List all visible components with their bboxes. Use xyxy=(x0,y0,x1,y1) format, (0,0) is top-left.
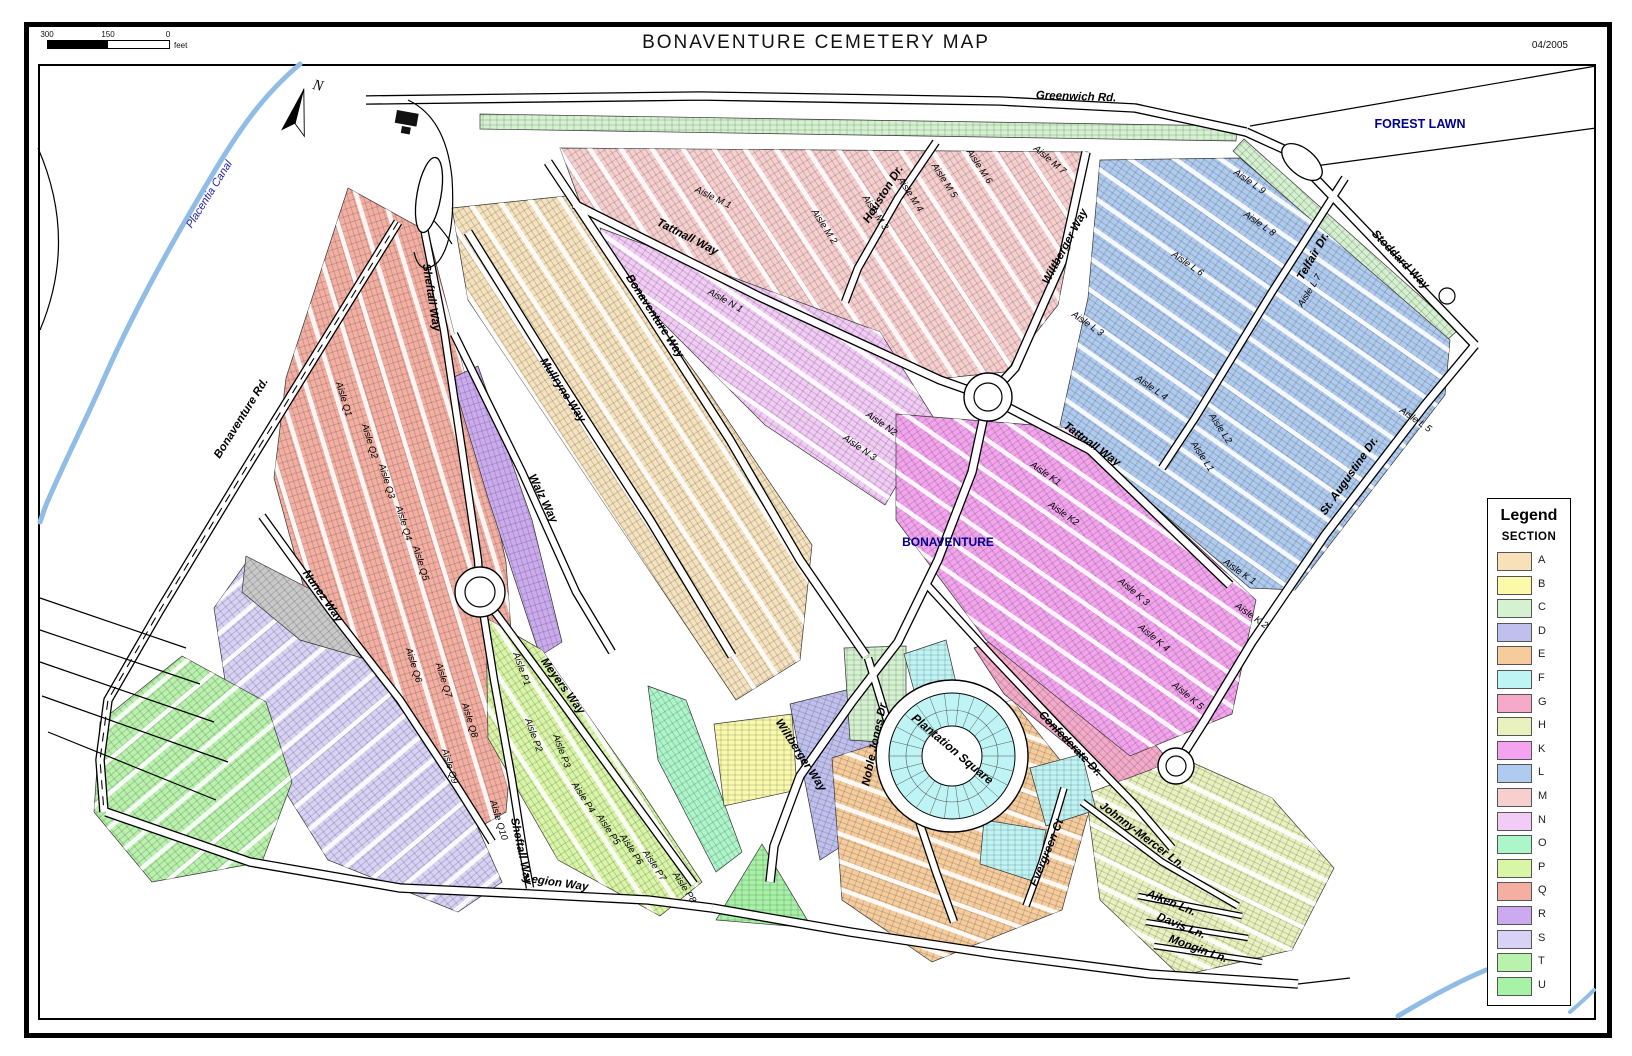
legend-label-M: M xyxy=(1538,790,1547,802)
legend-swatch-G xyxy=(1497,694,1532,713)
building-0 xyxy=(395,110,419,127)
roundabout-confederate-island xyxy=(1166,756,1186,776)
bonaventure-cemetery-map-page: BONAVENTURE CEMETERY MAP 04/2005 300 150… xyxy=(0,0,1632,1056)
legend-item-O: O xyxy=(1488,832,1570,856)
legend-rows: ABCDEFGHKLMNOPQRSTU xyxy=(1488,549,1570,997)
roundabout-tattnall-island xyxy=(974,383,1002,411)
water-water-br-2 xyxy=(1570,990,1594,1012)
legend-swatch-S xyxy=(1497,930,1532,949)
legend-swatch-N xyxy=(1497,812,1532,831)
legend-swatch-L xyxy=(1497,764,1532,783)
legend-swatch-M xyxy=(1497,788,1532,807)
entrance-pond xyxy=(411,155,448,234)
legend-swatch-P xyxy=(1497,859,1532,878)
line-ne-line-2 xyxy=(1300,128,1596,168)
legend-item-F: F xyxy=(1488,667,1570,691)
legend-subtitle: SECTION xyxy=(1488,531,1570,543)
legend-label-K: K xyxy=(1538,743,1545,755)
roundabout-sheftall-island xyxy=(465,577,495,607)
legend-swatch-H xyxy=(1497,717,1532,736)
line-se-line xyxy=(1298,978,1350,984)
legend-label-N: N xyxy=(1538,814,1546,826)
building-1 xyxy=(401,126,411,134)
legend-label-G: G xyxy=(1538,696,1547,708)
legend-item-B: B xyxy=(1488,573,1570,597)
legend-label-H: H xyxy=(1538,719,1546,731)
path-left-arc xyxy=(38,148,59,330)
map-canvas: N Greenwich Rd.Stoddard WayTelfair Dr.Wi… xyxy=(0,0,1632,1056)
legend-label-F: F xyxy=(1538,672,1545,684)
legend-title: Legend xyxy=(1488,507,1570,525)
legend-item-K: K xyxy=(1488,738,1570,762)
legend-item-A: A xyxy=(1488,549,1570,573)
legend-item-T: T xyxy=(1488,950,1570,974)
legend-label-C: C xyxy=(1538,601,1546,613)
legend-item-D: D xyxy=(1488,620,1570,644)
legend-item-L: L xyxy=(1488,761,1570,785)
legend-item-P: P xyxy=(1488,856,1570,880)
legend-swatch-C xyxy=(1497,599,1532,618)
legend-label-O: O xyxy=(1538,837,1547,849)
legend-swatch-T xyxy=(1497,953,1532,972)
legend-label-U: U xyxy=(1538,979,1546,991)
legend-label-R: R xyxy=(1538,908,1546,920)
legend-swatch-B xyxy=(1497,576,1532,595)
legend-item-S: S xyxy=(1488,927,1570,951)
legend-item-Q: Q xyxy=(1488,879,1570,903)
label-forest-lawn: FOREST LAWN xyxy=(1375,117,1466,131)
legend-swatch-U xyxy=(1497,977,1532,996)
legend-label-P: P xyxy=(1538,861,1545,873)
legend-label-Q: Q xyxy=(1538,884,1547,896)
water-water-br-1 xyxy=(1398,970,1486,1016)
legend-swatch-Q xyxy=(1497,882,1532,901)
legend-item-E: E xyxy=(1488,643,1570,667)
legend-swatch-E xyxy=(1497,646,1532,665)
north-label: N xyxy=(310,77,326,95)
legend-swatch-D xyxy=(1497,623,1532,642)
legend-item-H: H xyxy=(1488,714,1570,738)
water-placentia-canal xyxy=(40,64,300,522)
legend-item-N: N xyxy=(1488,809,1570,833)
legend-panel: Legend SECTION ABCDEFGHKLMNOPQRSTU xyxy=(1487,498,1571,1006)
label-placentia-canal: Placentia Canal xyxy=(184,158,235,230)
legend-label-A: A xyxy=(1538,554,1545,566)
legend-swatch-F xyxy=(1497,670,1532,689)
north-arrow: N xyxy=(281,72,326,138)
legend-label-T: T xyxy=(1538,955,1545,967)
legend-item-U: U xyxy=(1488,974,1570,998)
legend-item-M: M xyxy=(1488,785,1570,809)
legend-swatch-K xyxy=(1497,741,1532,760)
section-grid-strip-top xyxy=(480,114,1237,141)
legend-label-S: S xyxy=(1538,932,1545,944)
legend-label-B: B xyxy=(1538,578,1545,590)
legend-item-G: G xyxy=(1488,691,1570,715)
legend-label-D: D xyxy=(1538,625,1546,637)
legend-label-L: L xyxy=(1538,766,1544,778)
legend-swatch-A xyxy=(1497,552,1532,571)
legend-swatch-R xyxy=(1497,906,1532,925)
legend-item-C: C xyxy=(1488,596,1570,620)
label-bonaventure: BONAVENTURE xyxy=(902,535,994,549)
legend-item-R: R xyxy=(1488,903,1570,927)
edge-circle xyxy=(1439,288,1455,304)
legend-swatch-O xyxy=(1497,835,1532,854)
legend-label-E: E xyxy=(1538,648,1545,660)
